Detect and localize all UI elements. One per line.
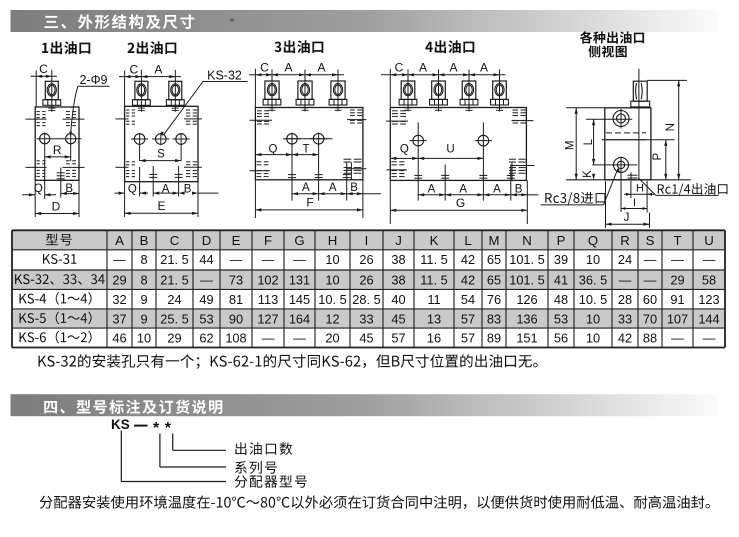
svg-text:62: 62 [199,331,213,346]
svg-text:10: 10 [137,331,151,346]
svg-text:13: 13 [427,311,441,326]
svg-text:—: — [200,272,213,287]
svg-text:I: I [633,197,636,209]
svg-text:C: C [395,61,404,75]
svg-text:41: 41 [554,272,568,287]
svg-text:Q: Q [588,233,598,248]
svg-text:91: 91 [670,292,684,307]
svg-text:C: C [129,62,138,76]
svg-text:J: J [395,233,402,248]
svg-text:F: F [306,196,313,210]
svg-text:A: A [459,184,467,196]
svg-text:J: J [624,212,630,224]
svg-text:136: 136 [516,311,537,326]
svg-text:33: 33 [359,311,373,326]
svg-text:48: 48 [554,292,568,307]
svg-text:12: 12 [325,311,339,326]
svg-text:58: 58 [702,272,716,287]
svg-text:11. 5: 11. 5 [420,252,448,267]
svg-text:65: 65 [487,272,501,287]
svg-text:164: 164 [289,311,310,326]
svg-text:123: 123 [698,292,719,307]
svg-text:25. 5: 25. 5 [160,311,188,326]
svg-text:53: 53 [199,311,213,326]
svg-text:16: 16 [427,331,441,346]
svg-text:126: 126 [516,292,537,307]
svg-text:A: A [317,61,325,75]
svg-text:N: N [522,233,532,248]
svg-text:108: 108 [225,331,246,346]
svg-text:54: 54 [461,292,475,307]
svg-text:29: 29 [167,331,181,346]
svg-text:107: 107 [667,311,688,326]
svg-text:R: R [620,233,630,248]
svg-text:24: 24 [167,292,181,307]
svg-text:81: 81 [229,292,243,307]
svg-text:S: S [157,149,165,161]
svg-text:10. 5: 10. 5 [579,292,607,307]
svg-text:37: 37 [112,311,126,326]
svg-text:B: B [184,183,192,195]
svg-text:10: 10 [586,311,600,326]
svg-text:42: 42 [461,252,475,267]
svg-text:89: 89 [487,331,501,346]
svg-text:10. 5: 10. 5 [318,292,346,307]
svg-text:—: — [262,331,275,346]
svg-text:46: 46 [112,331,126,346]
svg-text:A: A [449,61,457,75]
svg-text:11. 5: 11. 5 [420,272,448,287]
svg-text:I: I [365,233,369,248]
svg-text:E: E [232,233,241,248]
svg-text:83: 83 [487,311,501,326]
svg-text:G: G [294,233,304,248]
svg-text:45: 45 [359,331,373,346]
svg-text:113: 113 [258,292,278,307]
svg-text:8: 8 [140,272,147,287]
svg-text:L: L [583,138,595,145]
svg-text:S: S [646,233,655,248]
svg-text:144: 144 [698,311,719,326]
svg-text:B: B [140,233,149,248]
svg-text:—: — [671,252,684,267]
svg-text:H: H [328,233,338,248]
svg-text:49: 49 [199,292,213,307]
svg-text:36. 5: 36. 5 [579,272,607,287]
svg-text:K: K [582,170,594,178]
svg-text:8: 8 [140,252,147,267]
svg-text:26: 26 [359,272,373,287]
svg-text:U: U [446,143,454,155]
svg-text:53: 53 [554,311,568,326]
svg-text:L: L [464,233,471,248]
svg-text:38: 38 [391,252,405,267]
svg-text:39: 39 [554,252,568,267]
svg-text:28: 28 [618,292,632,307]
svg-text:A: A [480,61,488,75]
svg-text:E: E [157,199,165,213]
svg-text:A: A [284,61,292,75]
svg-text:26: 26 [359,252,373,267]
svg-text:N: N [665,123,677,131]
svg-text:28. 5: 28. 5 [352,292,380,307]
svg-text:40: 40 [391,292,405,307]
svg-text:10: 10 [325,272,339,287]
svg-text:Q: Q [269,143,278,155]
svg-text:—: — [703,252,716,267]
svg-text:M: M [489,233,500,248]
svg-text:K: K [430,233,439,248]
svg-text:A: A [115,233,124,248]
svg-text:—: — [262,252,275,267]
svg-text:A: A [419,61,427,75]
svg-text:Q: Q [400,143,409,155]
svg-text:—: — [644,252,657,267]
svg-text:20: 20 [325,331,339,346]
svg-text:38: 38 [391,272,405,287]
svg-text:C: C [39,62,48,76]
svg-text:65: 65 [487,252,501,267]
svg-text:44: 44 [199,252,213,267]
svg-text:*: * [153,420,160,437]
svg-text:—: — [619,272,632,287]
svg-text:P: P [557,233,566,248]
svg-text:10: 10 [325,252,339,267]
svg-text:KS-32: KS-32 [207,69,242,83]
svg-text:A: A [154,62,162,76]
svg-text:—: — [113,252,126,267]
svg-text:10: 10 [586,331,600,346]
svg-text:76: 76 [487,292,501,307]
svg-text:9: 9 [140,311,147,326]
svg-text:R: R [53,143,62,157]
svg-text:24: 24 [618,252,632,267]
svg-text:10: 10 [586,252,600,267]
svg-text:57: 57 [461,311,475,326]
svg-text:U: U [704,233,714,248]
svg-text:90: 90 [229,311,243,326]
svg-text:F: F [264,233,272,248]
svg-text:A: A [493,184,501,196]
svg-text:—: — [671,331,684,346]
svg-text:H: H [636,183,644,195]
svg-text:33: 33 [618,311,632,326]
svg-text:—: — [703,331,716,346]
svg-text:2-Φ9: 2-Φ9 [79,73,107,87]
svg-text:—: — [230,252,243,267]
svg-text:101. 5: 101. 5 [509,252,545,267]
svg-text:101. 5: 101. 5 [509,272,545,287]
svg-text:127: 127 [257,311,278,326]
svg-text:D: D [202,233,212,248]
svg-text:9: 9 [140,292,147,307]
svg-text:P: P [652,153,664,161]
svg-text:T: T [302,143,309,155]
svg-text:11: 11 [427,292,440,307]
svg-text:131: 131 [289,272,310,287]
svg-text:88: 88 [643,331,657,346]
svg-text:70: 70 [643,311,657,326]
svg-text:29: 29 [112,272,126,287]
svg-text:C: C [260,61,269,75]
svg-text:151: 151 [516,331,537,346]
svg-text:21. 5: 21. 5 [160,272,188,287]
svg-text:29: 29 [670,272,684,287]
svg-text:102: 102 [257,272,278,287]
svg-text:M: M [565,141,577,151]
svg-text:D: D [52,199,61,213]
svg-text:32: 32 [112,292,126,307]
svg-text:A: A [428,184,436,196]
svg-text:A: A [302,182,310,194]
svg-text:42: 42 [618,331,632,346]
svg-text:T: T [673,233,681,248]
svg-text:42: 42 [461,272,475,287]
svg-text:145: 145 [289,292,310,307]
svg-text:57: 57 [461,331,475,346]
svg-text:G: G [456,196,465,210]
svg-text:60: 60 [643,292,657,307]
svg-text:56: 56 [554,331,568,346]
svg-text:57: 57 [391,331,405,346]
svg-text:A: A [329,182,337,194]
svg-text:21. 5: 21. 5 [160,252,188,267]
svg-text:45: 45 [391,311,405,326]
svg-text:73: 73 [229,272,243,287]
svg-text:Q: Q [128,183,137,195]
svg-text:—: — [644,272,657,287]
svg-text:—: — [293,331,306,346]
svg-text:KS: KS [111,417,130,432]
svg-text:*: * [165,420,172,437]
svg-text:—: — [293,252,306,267]
svg-text:C: C [170,233,180,248]
